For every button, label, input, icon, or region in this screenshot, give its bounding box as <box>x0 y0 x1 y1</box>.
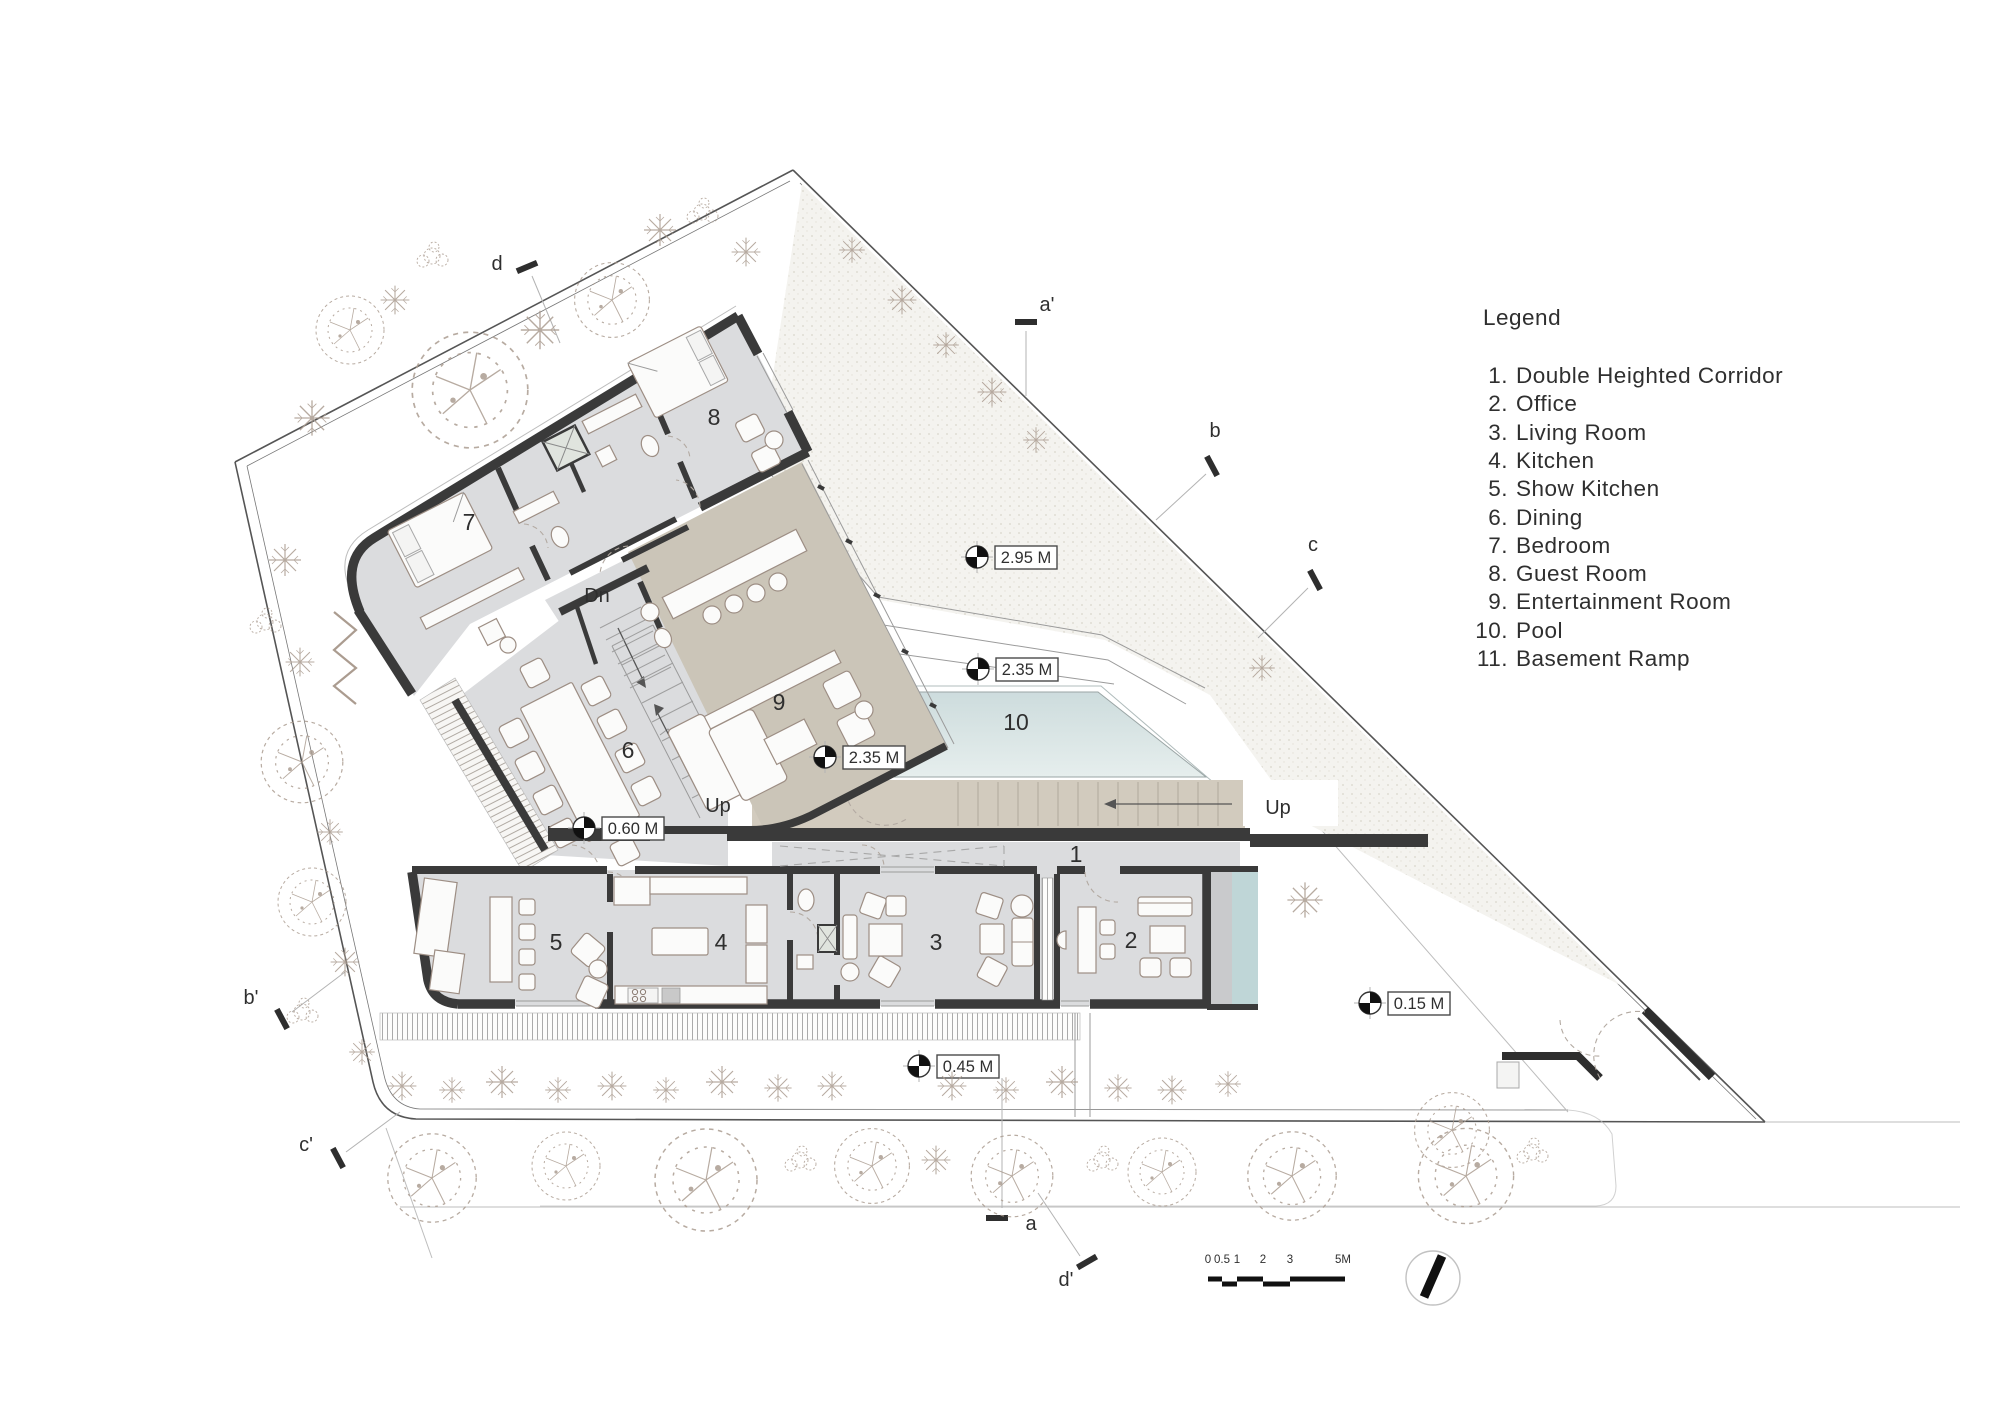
section-marker-c-prime: c' <box>299 1112 400 1169</box>
sliding-glass-panel <box>1042 878 1053 1000</box>
level-label: 2.35 M <box>1002 661 1052 679</box>
room-label-8: 8 <box>708 404 721 430</box>
room-label-10: 10 <box>1003 709 1029 735</box>
legend-item: 2.Office <box>1488 391 1577 416</box>
section-marker-a-prime: a' <box>1015 294 1054 396</box>
basement-ramp-gate <box>1497 1010 1712 1088</box>
scale-tick: 2 <box>1260 1254 1266 1266</box>
legend-item: 9.Entertainment Room <box>1488 589 1731 614</box>
legend-item: 6.Dining <box>1488 505 1583 530</box>
level-label: 2.95 M <box>1001 549 1051 567</box>
stair-down-label: Dn <box>584 585 610 607</box>
level-marker-295: 2.95 M <box>961 541 1057 573</box>
legend-title: Legend <box>1483 305 1561 330</box>
legend: Legend 1.Double Heighted Corridor 2.Offi… <box>1475 305 1783 671</box>
section-label-a-prime: a' <box>1040 294 1055 316</box>
legend-item: 4.Kitchen <box>1488 448 1594 473</box>
stair-up-label: Up <box>705 795 731 817</box>
room-label-9: 9 <box>773 689 786 715</box>
scale-tick: 0 <box>1205 1254 1211 1266</box>
scale-tick: 3 <box>1287 1254 1293 1266</box>
section-label-b-prime: b' <box>244 987 259 1009</box>
level-label: 0.60 M <box>608 820 658 838</box>
north-arrow-icon <box>1406 1251 1460 1305</box>
level-label: 0.15 M <box>1394 995 1444 1013</box>
level-marker-060: 0.60 M <box>568 812 664 844</box>
section-label-c-prime: c' <box>299 1134 313 1156</box>
legend-item: 8.Guest Room <box>1488 561 1647 586</box>
room-label-5: 5 <box>550 929 563 955</box>
legend-item: 1.Double Heighted Corridor <box>1488 363 1783 388</box>
legend-item: 3.Living Room <box>1488 420 1646 445</box>
section-label-a: a <box>1025 1213 1037 1235</box>
legend-item: 10.Pool <box>1475 618 1563 643</box>
level-label: 0.45 M <box>943 1058 993 1076</box>
legend-item: 5.Show Kitchen <box>1488 476 1659 501</box>
room-label-6: 6 <box>622 737 635 763</box>
room-label-4: 4 <box>715 929 728 955</box>
section-marker-b-prime: b' <box>244 972 345 1030</box>
section-marker-c: c <box>1258 534 1323 638</box>
section-marker-b: b <box>1156 420 1221 520</box>
deck-up-label: Up <box>1265 797 1291 819</box>
scale-tick: 5M <box>1335 1254 1351 1266</box>
room-label-7: 7 <box>463 509 476 535</box>
level-marker-015: 0.15 M <box>1354 987 1450 1019</box>
glass-wall-east <box>1232 872 1258 1006</box>
section-label-c: c <box>1308 534 1318 556</box>
section-label-d: d <box>491 253 502 275</box>
scale-tick: 1 <box>1234 1254 1240 1266</box>
level-label: 2.35 M <box>849 749 899 767</box>
level-marker-235-room9: 2.35 M <box>809 741 905 773</box>
scale-bar: 0 0.5 1 2 3 5M <box>1205 1254 1351 1284</box>
section-marker-d-prime: d' <box>1038 1193 1098 1291</box>
floor-plan-canvas: d a' b c b' c' a <box>0 0 2000 1414</box>
room-label-3: 3 <box>930 929 943 955</box>
legend-item: 7.Bedroom <box>1488 533 1611 558</box>
legend-item: 11.Basement Ramp <box>1477 646 1690 671</box>
room-label-2: 2 <box>1125 927 1138 953</box>
section-marker-a: a <box>986 1078 1037 1235</box>
scale-tick: 0.5 <box>1214 1254 1230 1266</box>
section-label-b: b <box>1209 420 1220 442</box>
room-label-1: 1 <box>1070 841 1083 867</box>
level-marker-235-upper: 2.35 M <box>962 653 1058 685</box>
section-label-d-prime: d' <box>1059 1269 1074 1291</box>
